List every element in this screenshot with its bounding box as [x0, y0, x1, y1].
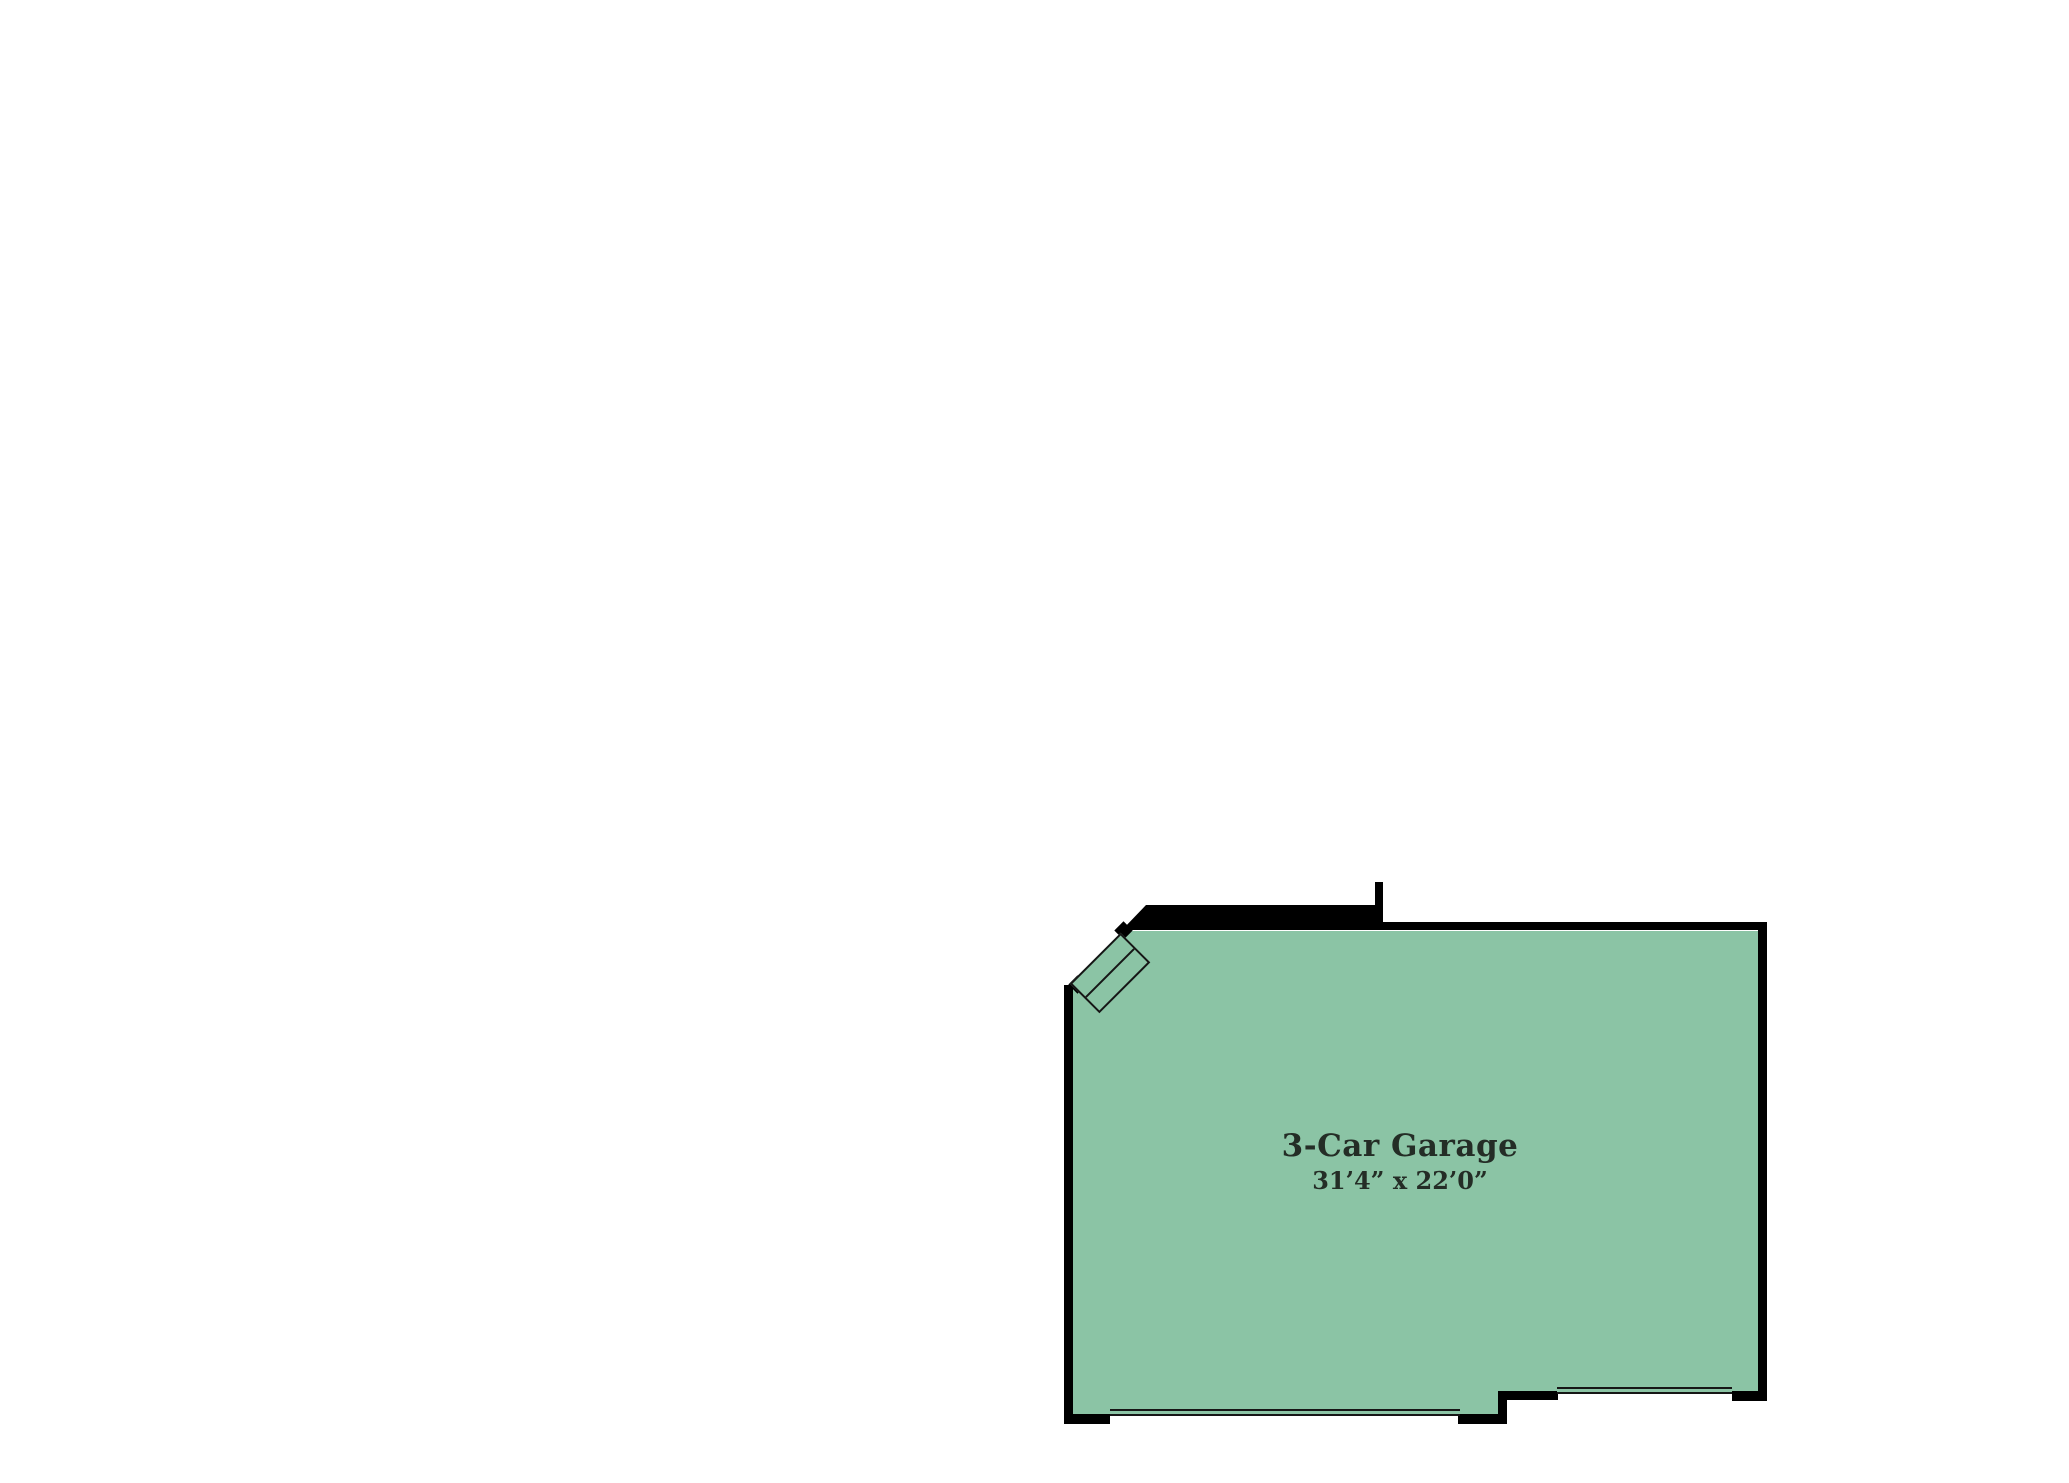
wall-right	[1758, 922, 1767, 1401]
wall-top-thick	[1122, 905, 1383, 930]
wall-bottom-mid-lower	[1458, 1414, 1507, 1424]
garage-door-opening-left	[1110, 1409, 1460, 1416]
wall-top-stub	[1375, 882, 1383, 907]
wall-left	[1064, 985, 1073, 1424]
room-dimensions: 31’4” x 22’0”	[1200, 1167, 1600, 1196]
wall-bottom-mid-upper	[1498, 1391, 1558, 1400]
room-name: 3-Car Garage	[1200, 1128, 1600, 1165]
floor-plan: 3-Car Garage 31’4” x 22’0”	[0, 0, 2069, 1483]
room-label: 3-Car Garage 31’4” x 22’0”	[1200, 1128, 1600, 1196]
wall-top-thin	[1383, 922, 1767, 930]
wall-bottom-right-bar	[1732, 1391, 1767, 1401]
garage-door-opening-right	[1557, 1387, 1732, 1394]
